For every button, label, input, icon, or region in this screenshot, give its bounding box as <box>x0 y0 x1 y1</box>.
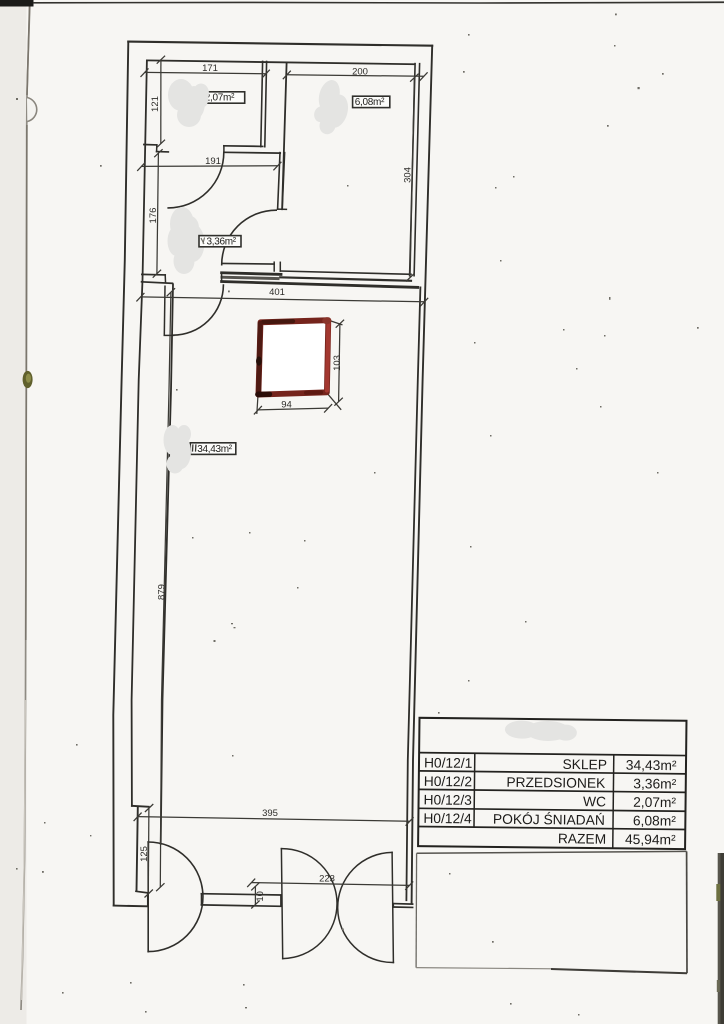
svg-text:6,08m²: 6,08m² <box>633 813 677 828</box>
svg-text:34,43m²: 34,43m² <box>197 444 233 455</box>
svg-text:34,43m²: 34,43m² <box>626 758 677 774</box>
svg-text:94: 94 <box>281 400 292 411</box>
svg-text:125: 125 <box>139 846 150 862</box>
svg-text:H0/12/3: H0/12/3 <box>424 792 473 808</box>
svg-text:304: 304 <box>402 167 413 183</box>
svg-text:H0/12/4: H0/12/4 <box>423 811 472 827</box>
svg-text:171: 171 <box>202 63 218 74</box>
svg-text:2,07m²: 2,07m² <box>205 93 235 104</box>
svg-text:45,94m²: 45,94m² <box>625 832 676 848</box>
svg-text:401: 401 <box>269 287 285 298</box>
svg-text:6,08m²: 6,08m² <box>355 97 385 108</box>
svg-text:103: 103 <box>332 355 343 371</box>
svg-text:3,36m²: 3,36m² <box>207 236 237 247</box>
svg-text:POKÓJ ŚNIADAŃ: POKÓJ ŚNIADAŃ <box>493 810 605 828</box>
svg-text:191: 191 <box>205 156 221 167</box>
svg-text:H0/12/2: H0/12/2 <box>424 774 472 790</box>
svg-text:RAZEM: RAZEM <box>558 831 606 847</box>
svg-text:200: 200 <box>352 66 368 77</box>
svg-text:H0/12/1: H0/12/1 <box>424 755 472 771</box>
svg-text:395: 395 <box>262 808 278 819</box>
svg-text:SKLEP: SKLEP <box>562 757 607 772</box>
svg-text:223: 223 <box>319 874 335 885</box>
svg-text:PRZEDSIONEK: PRZEDSIONEK <box>506 775 606 791</box>
svg-text:10: 10 <box>255 891 266 902</box>
svg-text:2,07m²: 2,07m² <box>633 795 677 810</box>
svg-text:121: 121 <box>150 96 161 112</box>
svg-text:176: 176 <box>148 208 159 224</box>
svg-text:WC: WC <box>583 794 606 809</box>
svg-text:879: 879 <box>157 584 168 600</box>
svg-text:3,36m²: 3,36m² <box>633 776 677 791</box>
